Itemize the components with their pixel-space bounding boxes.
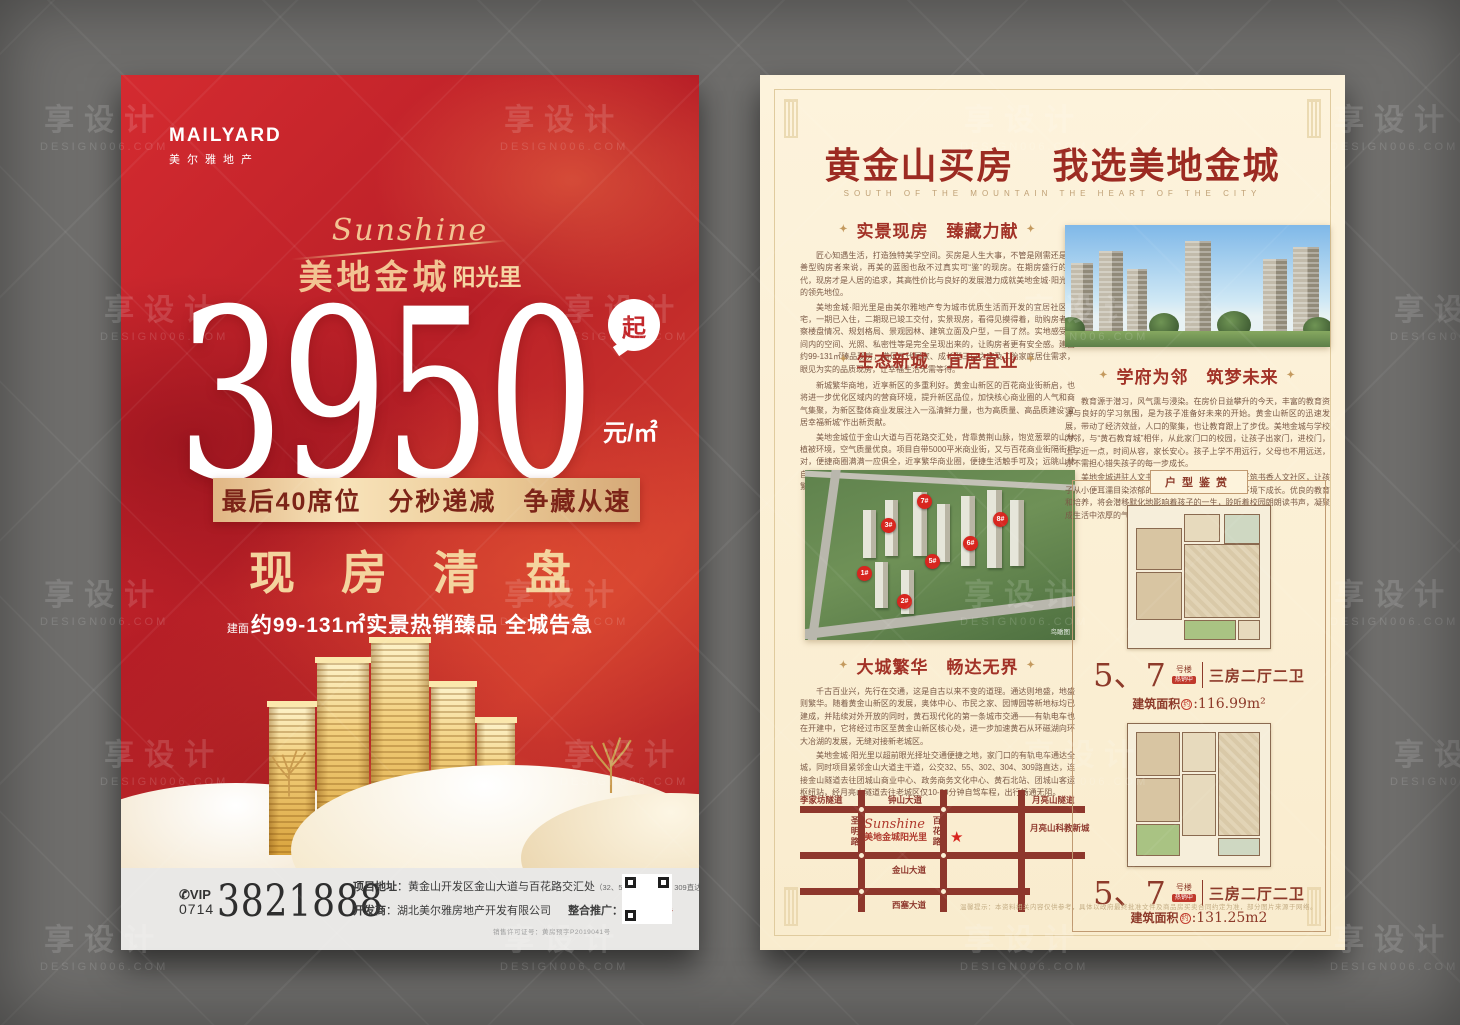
building-badge: 1# <box>857 566 872 581</box>
watermark: 享设计DESIGN006.COM <box>1330 95 1458 153</box>
building-badge: 2# <box>897 594 912 609</box>
gold-tree-icon <box>267 741 311 802</box>
floorplan-label-1: 5、7 号楼 热销中 三房二厅二卫 <box>1073 659 1325 691</box>
back-page-subtitle: SOUTH OF THE MOUNTAIN THE HEART OF THE C… <box>760 189 1345 198</box>
floorplan-image-2 <box>1127 723 1271 867</box>
watermark: 享设计DESIGN006.COM <box>1330 915 1458 973</box>
section-title: 生态新城 宜居宜业 <box>857 347 1019 372</box>
floorplan-panel: 户型鉴赏 5、7 号楼 热销中 三房二厅二卫 建筑面积约:1 <box>1072 480 1326 932</box>
developer-logo: MAILYARD 美尔雅地产 <box>169 125 282 167</box>
flyer-back-page: 黄金山买房 我选美地金城 SOUTH OF THE MOUNTAIN THE H… <box>760 75 1345 950</box>
agency-label: 整合推广： <box>568 905 623 917</box>
section-paragraph: 教育源于潜习，风气熏与浸染。在房价日益攀升的今天，丰富的教育资源与良好的学习氛围… <box>1065 396 1330 470</box>
aerial-view-image: 7# 3# 8# 6# 5# 1# 2# 鸟瞰图 <box>805 470 1075 640</box>
map-star-icon: ★ <box>950 828 963 846</box>
urgency-banner: 最后40席位 分秒递减 争藏从速 <box>213 478 640 522</box>
floorplan-panel-title: 户型鉴赏 <box>1150 470 1248 494</box>
map-label-tunnel-left: 李家坊隧道 <box>800 794 843 806</box>
address-label: 项目地址 <box>353 881 397 893</box>
design-preview-canvas: MAILYARD 美尔雅地产 Sunshine 美地金城阳光里 3950 起 元… <box>0 0 1460 1025</box>
developer-value: ：湖北美尔雅房地产开发有限公司 <box>386 905 551 917</box>
section-city-access: ✦ 大城繁华 畅达无界 ✦ 千古百业兴，先行在交通，这是自古以来不变的道理。通达… <box>800 653 1075 802</box>
diamond-icon: ✦ <box>839 224 848 235</box>
developer-logo-cn: 美尔雅地产 <box>169 151 282 167</box>
diamond-icon: ✦ <box>1027 354 1036 365</box>
section-title: 大城繁华 畅达无界 <box>857 653 1019 678</box>
watermark: 享设计DESIGN006.COM <box>1390 730 1460 788</box>
building-badge: 5# <box>925 554 940 569</box>
gold-tree-icon <box>583 727 639 798</box>
map-label-road-top: 钟山大道 <box>888 794 922 806</box>
section-paragraph: 新城繁华商地，近享新区的多重利好。黄金山新区的百花商业街新启，也将进一步优化区域… <box>800 380 1075 430</box>
floorplan-area-1: 建筑面积约:116.99m² <box>1073 695 1325 712</box>
flyer-front-page: MAILYARD 美尔雅地产 Sunshine 美地金城阳光里 3950 起 元… <box>121 75 699 950</box>
map-label-road-bottom: 西塞大道 <box>892 899 926 911</box>
diamond-icon: ✦ <box>839 660 848 671</box>
building-badge: 3# <box>881 518 896 533</box>
column-ornament-icon <box>784 99 798 138</box>
section-paragraph: 千古百业兴，先行在交通，这是自古以来不变的道理。通达则地盛，地盛则繁华。随着黄金… <box>800 686 1075 748</box>
price-unit: 元/㎡ <box>603 413 658 448</box>
column-ornament-icon <box>1307 99 1321 138</box>
vip-phone-block: ✆VIP 0714 <box>179 888 214 918</box>
address-value: ：黄金山开发区金山大道与百花路交汇处 <box>397 881 595 893</box>
disclaimer-fine-print: 温馨提示：本资料相关内容仅供参考，具体以政府最终批准文件及商品房买卖合同约定为准… <box>960 901 1317 911</box>
map-label-road-mid: 金山大道 <box>892 864 926 876</box>
area-code: 0714 <box>179 902 214 917</box>
aerial-caption: 鸟瞰图 <box>1051 626 1071 636</box>
location-map: 李家坊隧道 钟山大道 月亮山隧道 月亮山科教新城 圣明路 百花路 金山大道 西塞… <box>800 790 1085 912</box>
diamond-icon: ✦ <box>1099 370 1108 381</box>
diamond-icon: ✦ <box>1287 370 1296 381</box>
qr-code <box>622 874 672 924</box>
contact-footer: ✆VIP 0714 3821888 项目地址：黄金山开发区金山大道与百花路交汇处… <box>121 868 699 950</box>
section-paragraph: 匠心知遇生活，打造独特美学空间。买房是人生大事，不管是刚需还是改善型购房者来说，… <box>800 250 1075 300</box>
floorplan-image-1 <box>1127 505 1271 649</box>
diamond-icon: ✦ <box>1027 224 1036 235</box>
column-ornament-icon <box>784 887 798 926</box>
golden-buildings-illustration <box>121 615 699 868</box>
section-title: 实景现房 臻藏力献 <box>857 217 1019 242</box>
status-badge: 热销中 <box>1172 676 1196 684</box>
developer-label: 开发商 <box>353 905 386 917</box>
license-fine-print: 销售许可证号：黄房预字P2019041号 <box>493 926 611 936</box>
project-logo-script: Sunshine <box>121 213 699 248</box>
map-label-tunnel-right: 月亮山隧道 <box>1032 794 1075 806</box>
building-badge: 7# <box>917 494 932 509</box>
developer-logo-en: MAILYARD <box>169 125 282 147</box>
phone-icon: ✆ <box>179 887 190 902</box>
building-badge: 8# <box>993 512 1008 527</box>
building-badge: 6# <box>963 536 978 551</box>
diamond-icon: ✦ <box>839 354 848 365</box>
map-label-road-v2: 百花路 <box>931 816 943 848</box>
floorplan-area-2: 建筑面积约:131.25m2 <box>1073 909 1325 926</box>
main-slogan: 现房清盘 <box>121 537 699 603</box>
watermark: 享设计DESIGN006.COM <box>1390 285 1460 343</box>
map-project-logo: Sunshine 美地金城阳光里 <box>864 818 927 842</box>
price-value: 3950 <box>177 303 590 491</box>
back-page-title: 黄金山买房 我选美地金城 <box>760 137 1345 189</box>
map-label-road-v1: 圣明路 <box>849 816 861 848</box>
watermark: 享设计DESIGN006.COM <box>1330 570 1458 628</box>
price-from-bubble: 起 <box>608 299 660 351</box>
diamond-icon: ✦ <box>1027 660 1036 671</box>
building-photo <box>1065 225 1330 347</box>
section-title: 学府为邻 筑梦未来 <box>1117 363 1279 388</box>
